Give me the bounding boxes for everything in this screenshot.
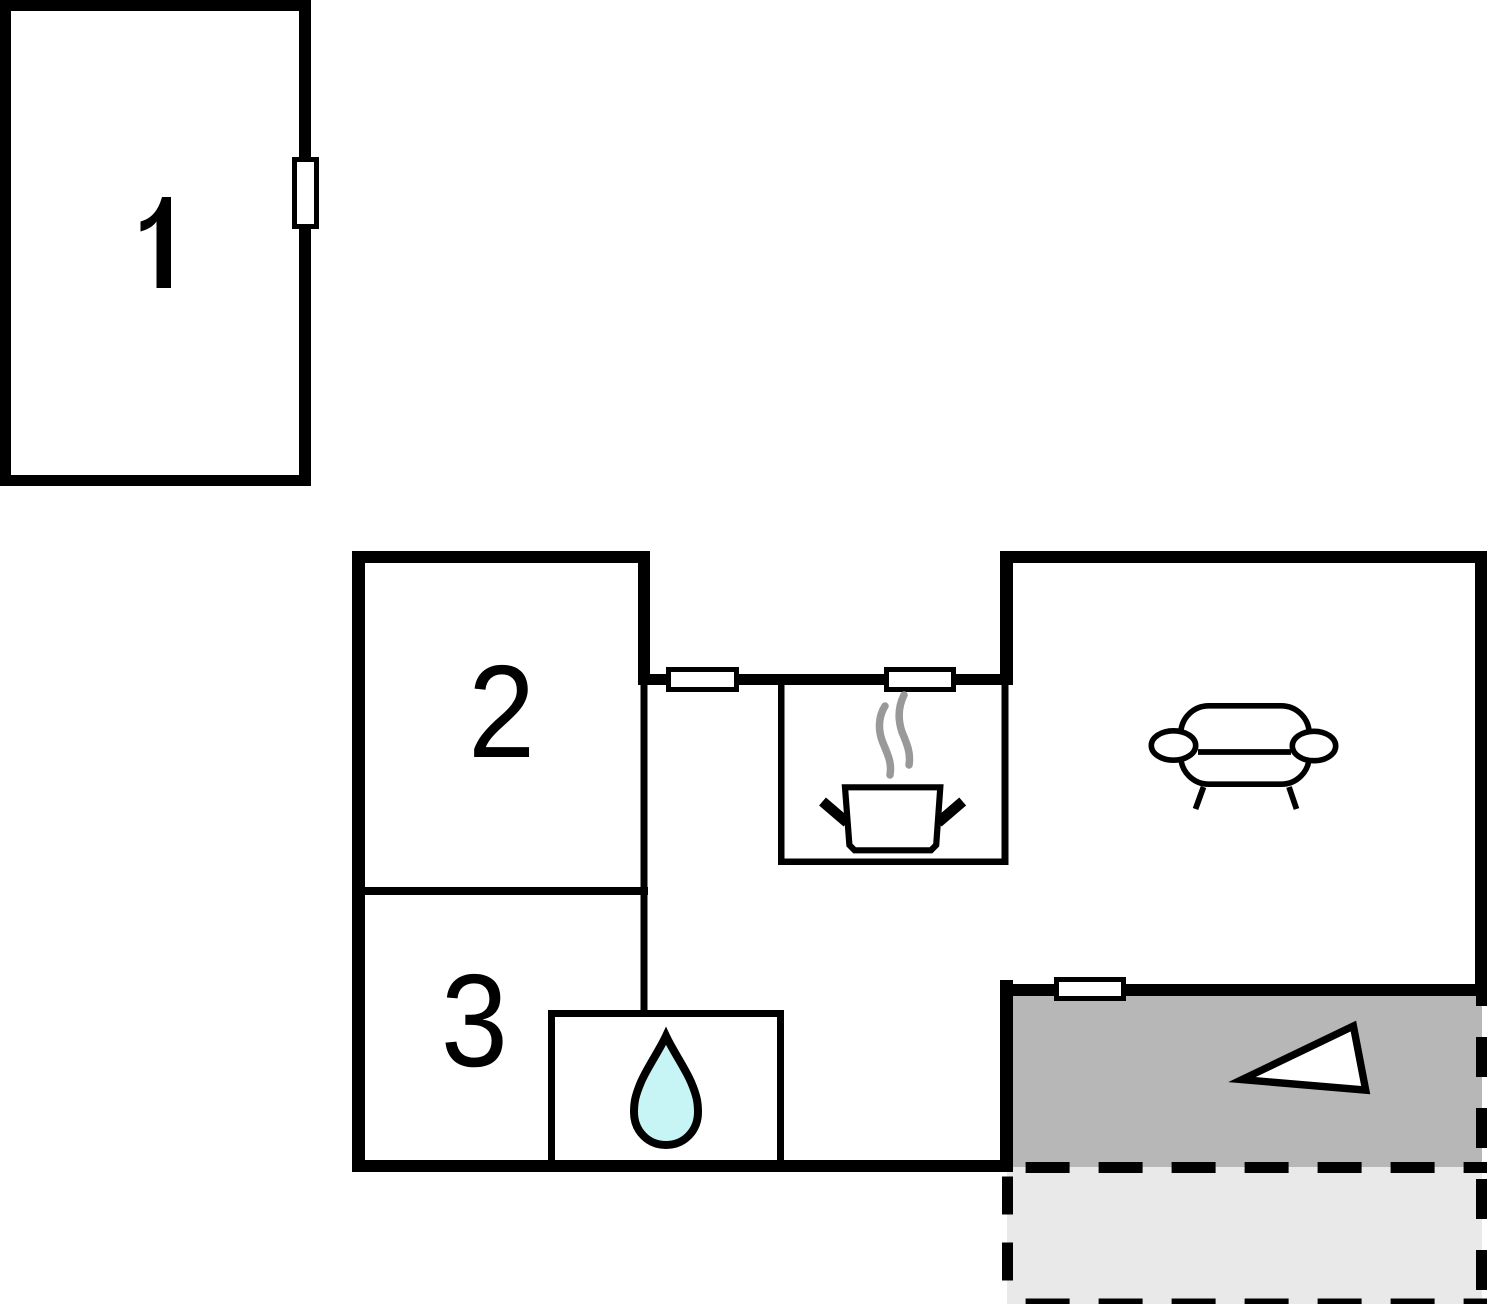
svg-text:2: 2 xyxy=(468,638,535,785)
svg-text:3: 3 xyxy=(441,947,508,1094)
